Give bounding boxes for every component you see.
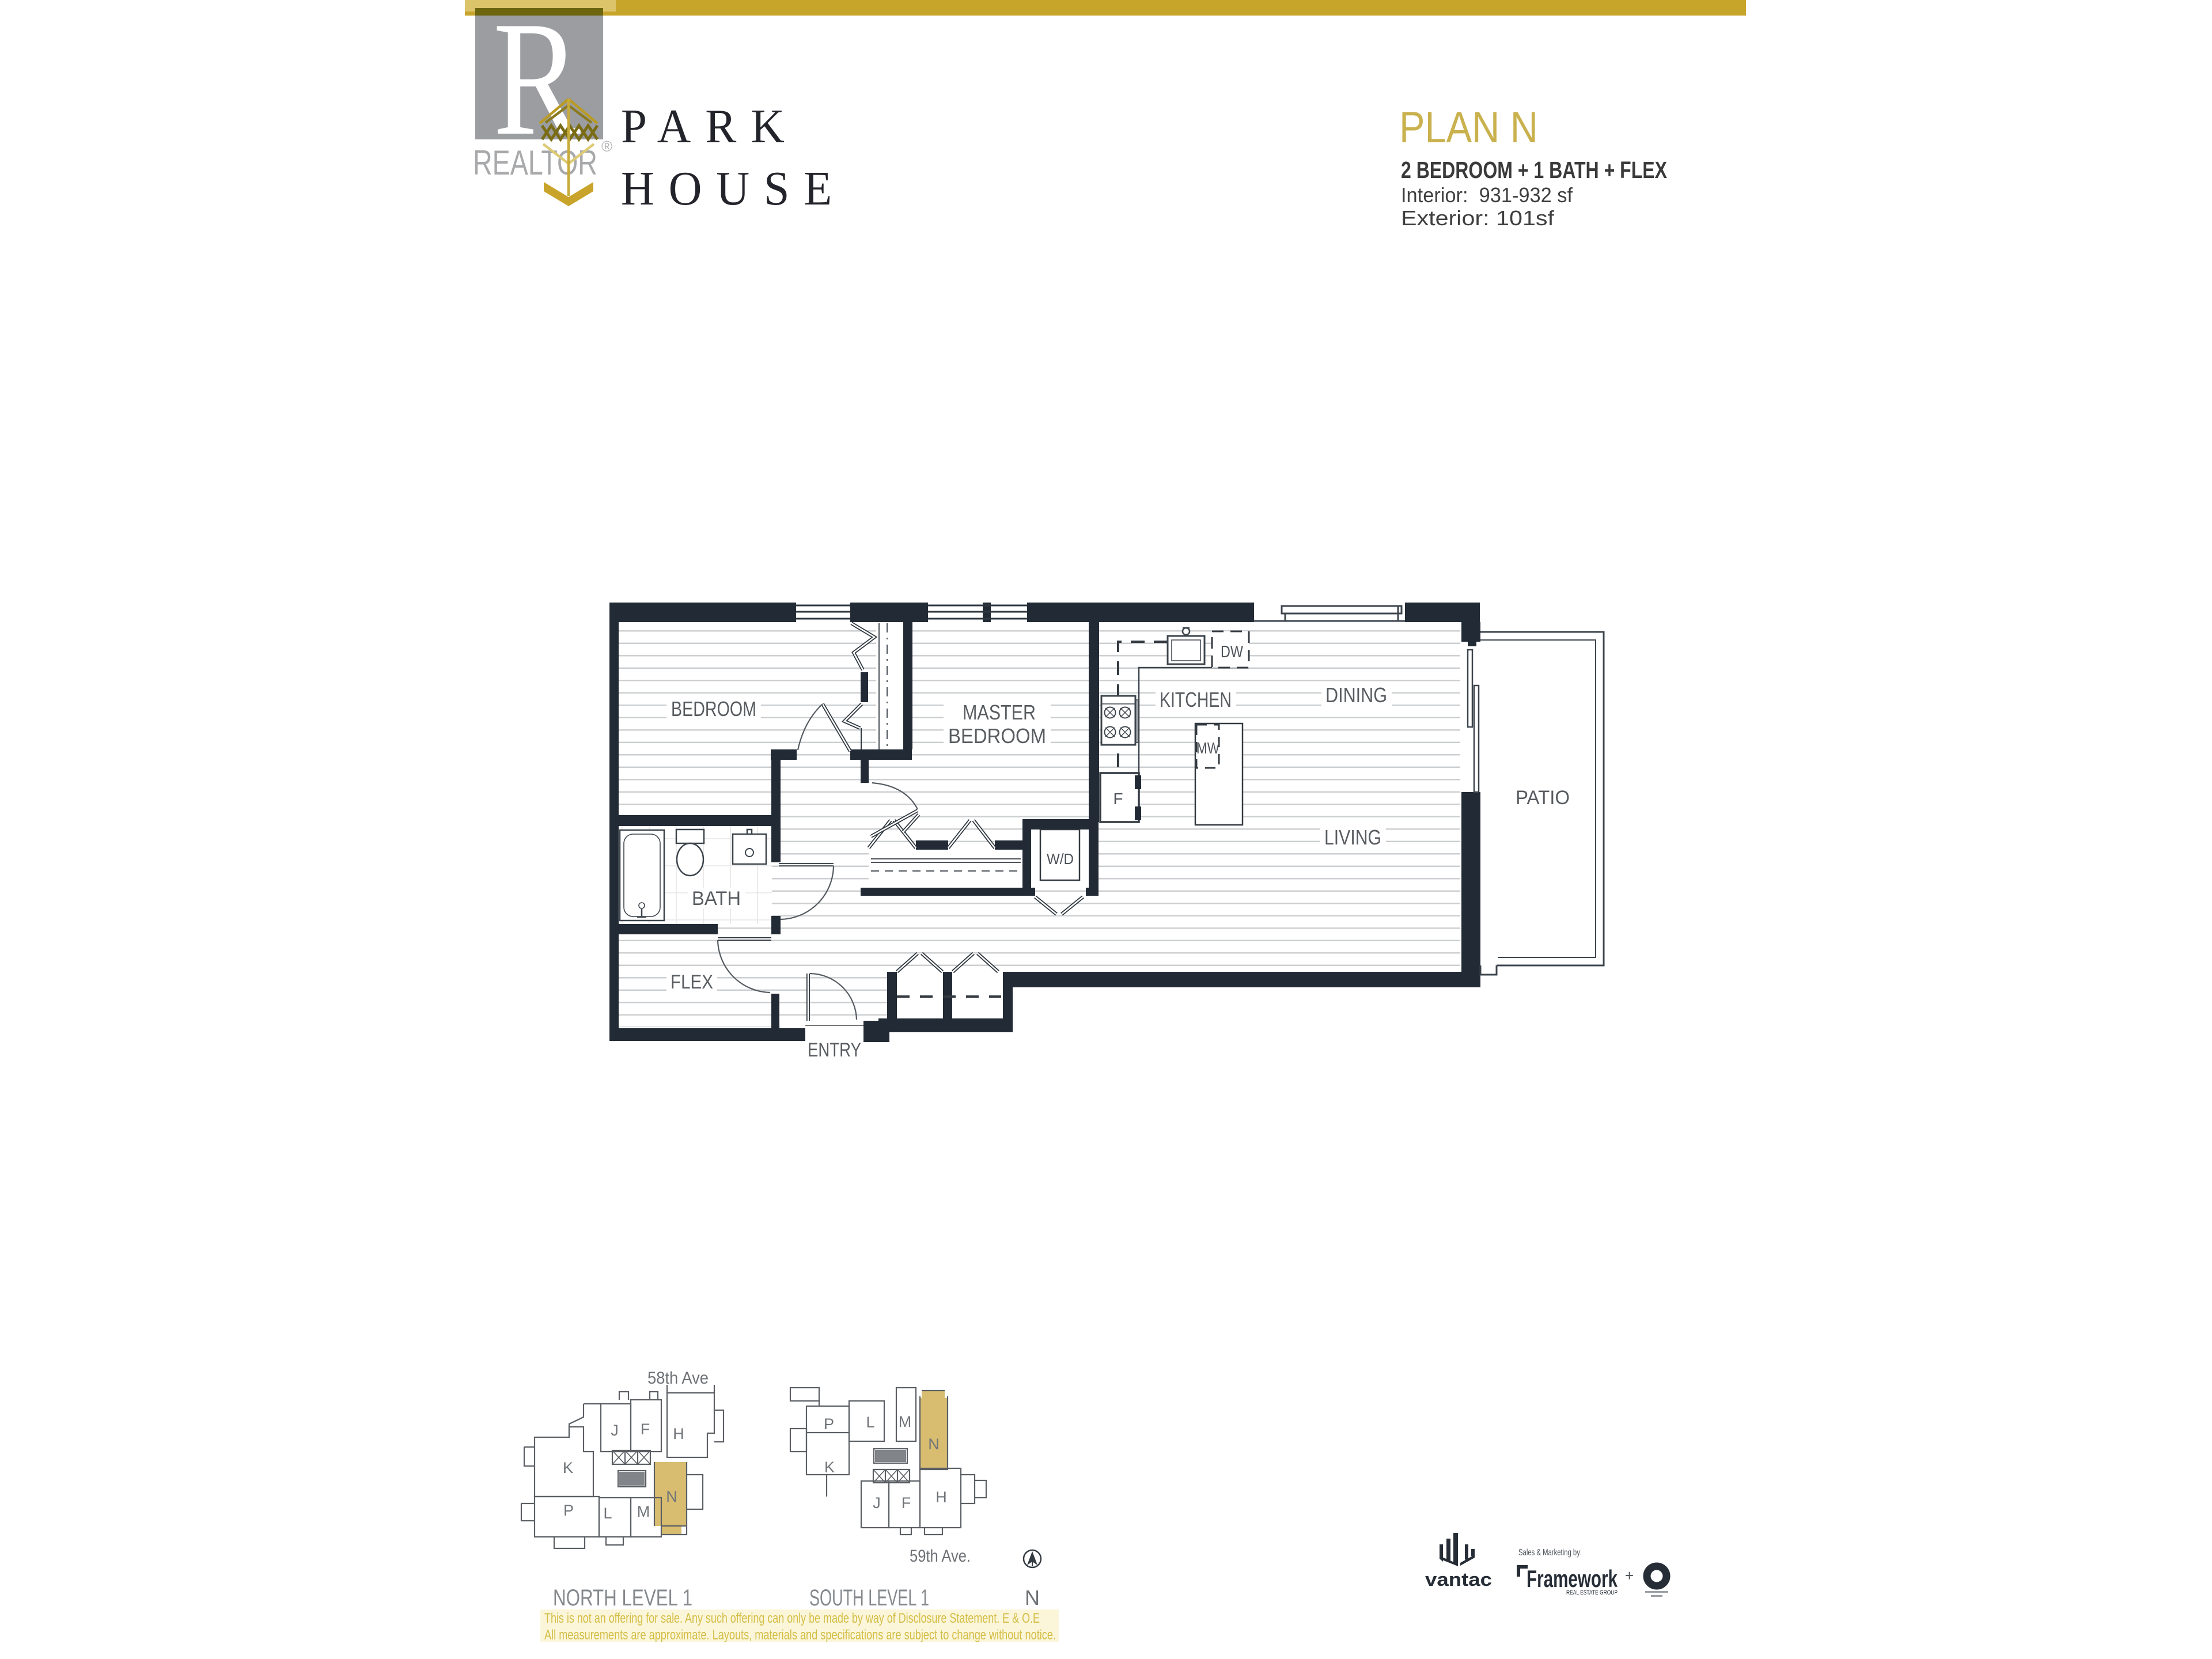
svg-text:K: K bbox=[563, 1459, 573, 1476]
svg-text:K: K bbox=[824, 1459, 835, 1476]
svg-text:®: ® bbox=[601, 138, 612, 155]
svg-text:FLEX: FLEX bbox=[671, 971, 713, 993]
svg-text:F: F bbox=[1113, 790, 1123, 808]
svg-text:P: P bbox=[563, 1502, 574, 1519]
svg-text:N: N bbox=[928, 1435, 940, 1453]
svg-text:PARK: PARK bbox=[621, 100, 799, 153]
svg-text:LIVING: LIVING bbox=[1324, 825, 1381, 849]
svg-text:+: + bbox=[1625, 1567, 1634, 1584]
svg-text:58th Ave: 58th Ave bbox=[647, 1369, 709, 1388]
svg-text:HOUSE: HOUSE bbox=[621, 162, 846, 215]
svg-text:BEDROOM: BEDROOM bbox=[671, 697, 756, 721]
svg-text:KITCHEN: KITCHEN bbox=[1160, 688, 1232, 711]
svg-text:All measurements are approxima: All measurements are approximate. Layout… bbox=[544, 1627, 1056, 1643]
svg-text:N: N bbox=[666, 1488, 677, 1505]
svg-text:ENTRY: ENTRY bbox=[808, 1039, 861, 1061]
svg-text:PATIO: PATIO bbox=[1516, 787, 1570, 809]
svg-text:Exterior: 101sf: Exterior: 101sf bbox=[1401, 206, 1555, 230]
svg-text:W/D: W/D bbox=[1047, 850, 1074, 868]
svg-text:L: L bbox=[603, 1505, 612, 1522]
svg-text:SOUTH LEVEL 1: SOUTH LEVEL 1 bbox=[809, 1585, 929, 1611]
svg-text:REAL ESTATE GROUP: REAL ESTATE GROUP bbox=[1566, 1589, 1618, 1596]
svg-text:59th Ave.: 59th Ave. bbox=[910, 1547, 971, 1566]
svg-text:MW: MW bbox=[1196, 739, 1219, 757]
svg-text:P: P bbox=[824, 1415, 834, 1433]
svg-text:M: M bbox=[637, 1503, 650, 1520]
svg-text:NORTH LEVEL 1: NORTH LEVEL 1 bbox=[553, 1585, 692, 1611]
svg-text:Framework: Framework bbox=[1527, 1565, 1618, 1592]
svg-text:REALTOR: REALTOR bbox=[473, 143, 597, 182]
svg-text:M: M bbox=[899, 1413, 912, 1430]
svg-text:H: H bbox=[673, 1425, 684, 1442]
svg-text:BEDROOM: BEDROOM bbox=[948, 724, 1046, 748]
svg-text:J: J bbox=[611, 1422, 619, 1439]
svg-text:PLAN N: PLAN N bbox=[1399, 103, 1538, 152]
svg-text:MASTER: MASTER bbox=[963, 700, 1036, 724]
svg-text:This is not an offering for sa: This is not an offering for sale. Any su… bbox=[544, 1611, 1040, 1626]
svg-text:DW: DW bbox=[1221, 643, 1243, 661]
svg-text:J: J bbox=[873, 1494, 881, 1512]
svg-text:BATH: BATH bbox=[692, 888, 741, 910]
svg-text:Sales & Marketing by:: Sales & Marketing by: bbox=[1518, 1548, 1582, 1558]
svg-text:L: L bbox=[866, 1414, 874, 1431]
svg-text:vantac: vantac bbox=[1425, 1569, 1492, 1590]
svg-text:F: F bbox=[641, 1421, 650, 1438]
svg-text:Interior: 931-932 sf: Interior: 931-932 sf bbox=[1401, 183, 1573, 207]
svg-text:F: F bbox=[902, 1494, 911, 1512]
svg-text:2 BEDROOM + 1 BATH + FLEX: 2 BEDROOM + 1 BATH + FLEX bbox=[1401, 157, 1667, 183]
svg-text:DINING: DINING bbox=[1325, 683, 1387, 707]
svg-text:H: H bbox=[935, 1488, 947, 1506]
svg-text:N: N bbox=[1025, 1586, 1040, 1609]
